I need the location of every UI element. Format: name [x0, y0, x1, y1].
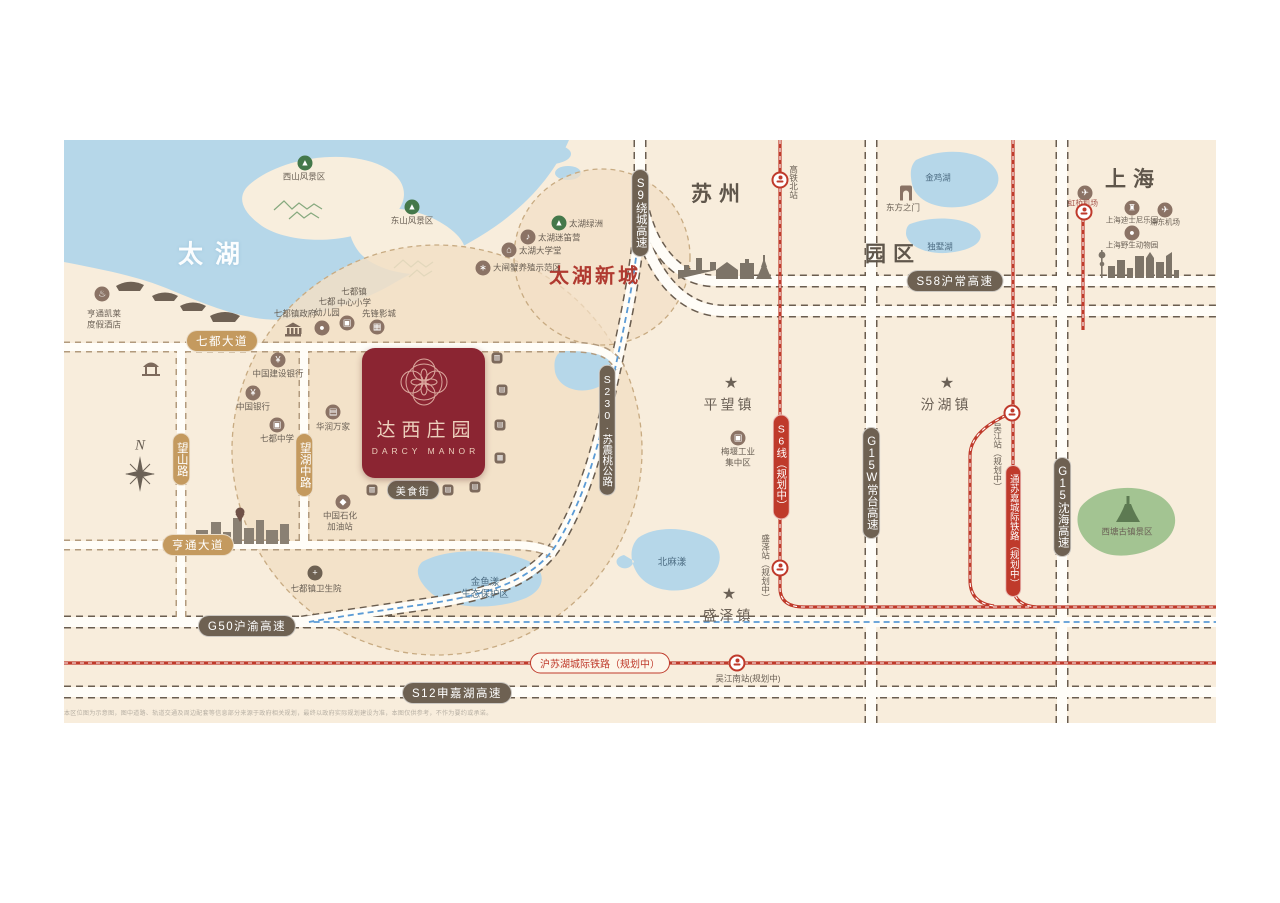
- kindergarten-label: 七都 幼儿园: [314, 296, 340, 317]
- jinyuyang-reserve-label: 金鱼漾 生态保护区: [461, 577, 509, 601]
- logo-side-icon-2: ▤: [497, 385, 508, 396]
- project-logo: 达西庄园 DARCY MANOR: [362, 348, 485, 478]
- taihu-university-icon: ⌂: [502, 243, 517, 258]
- wujiang-south-station-icon: [729, 655, 746, 672]
- road-pill-wangshan: 望山路: [172, 433, 190, 486]
- road-pill-s58: S58沪常高速: [907, 270, 1004, 292]
- town-shengze: 盛泽镇: [703, 607, 754, 625]
- wildlife-park-label: 上海野生动物园: [1106, 240, 1159, 249]
- food-street-pill: 美食街: [387, 480, 440, 500]
- hospital-label: 七都镇卫生院: [290, 584, 341, 595]
- food-street-icon-3: ▤: [470, 482, 481, 493]
- kindergarten-icon: ●: [315, 321, 330, 336]
- dongshan-scenic-icon: ▲: [405, 200, 420, 215]
- logo-side-icon-4: ▦: [495, 453, 506, 464]
- disney-icon: ♜: [1125, 201, 1140, 216]
- sinopec-line2: 加油站: [323, 521, 357, 532]
- pingwang-star-icon: ★: [724, 373, 738, 393]
- map-page: 太湖 苏州 园区 上海 太湖新城 N 达西: [0, 0, 1280, 903]
- crab-zone-icon: ∗: [476, 261, 491, 276]
- jinyuyang-line1: 金鱼漾: [461, 577, 509, 589]
- road-pill-g15w: G15W常台高速: [862, 427, 880, 539]
- primary-line2: 中心小学: [337, 297, 371, 308]
- sinopec-gas-icon: ◆: [336, 495, 351, 510]
- vanguard-market-label: 华润万家: [316, 422, 350, 433]
- pudong-airport-icon: ✈: [1158, 203, 1173, 218]
- region-taihu-newtown: 太湖新城: [549, 265, 641, 290]
- suzhou-skyline: [678, 255, 772, 279]
- jinyuyang-line2: 生态保护区: [461, 589, 509, 601]
- shanghai-skyline: [1099, 250, 1179, 278]
- meiyan-line2: 集中区: [721, 457, 755, 468]
- compass-north-label: N: [135, 438, 145, 455]
- pudong-airport-label: 浦东机场: [1150, 217, 1180, 226]
- boc-bank-icon: ¥: [246, 386, 261, 401]
- sinopec-line1: 中国石化: [323, 510, 357, 521]
- logo-side-icon-3: ▤: [495, 420, 506, 431]
- jinji-lake-shape: [911, 152, 999, 208]
- boc-bank-label: 中国银行: [236, 402, 270, 413]
- railway-pill-husuhu: 沪苏湖城际铁路（规划中）: [530, 653, 670, 674]
- project-name-en: DARCY MANOR: [366, 446, 485, 456]
- road-pill-qidu-avenue: 七都大道: [186, 330, 258, 352]
- food-street-icon-2: ▤: [443, 485, 454, 496]
- project-name-cn: 达西庄园: [368, 415, 485, 442]
- road-pill-wanghu-middle: 望湖中路: [295, 433, 313, 497]
- primary-school-label: 七都镇 中心小学: [337, 286, 371, 307]
- railway-pill-tongsujia: 通苏嘉城际铁路（规划中）: [1005, 465, 1021, 597]
- cinema-label: 先锋影城: [362, 309, 396, 320]
- road-pill-s230: S230·苏震桃公路: [599, 365, 616, 496]
- jinji-lake-label: 金鸡湖: [925, 173, 951, 184]
- ccb-bank-icon: ¥: [271, 353, 286, 368]
- map-canvas: 太湖 苏州 园区 上海 太湖新城 N 达西: [64, 140, 1216, 723]
- compass-needle-ew: [125, 471, 155, 478]
- hotel-label: 亨通凯莱 度假酒店: [87, 308, 121, 329]
- dushu-lake-label: 独墅湖: [927, 242, 953, 253]
- wujiang-station-icon: [1004, 405, 1021, 422]
- shengze-station-icon: [772, 560, 789, 577]
- xishan-scenic-label: 西山风景区: [283, 172, 326, 183]
- middle-school-label: 七都中学: [260, 434, 294, 445]
- kindergarten-line1: 七都: [314, 296, 340, 307]
- taihu-university-label: 太湖大学堂: [519, 246, 562, 257]
- wujiang-south-station-label: 吴江南站(规划中): [715, 674, 780, 685]
- midi-camp-label: 太湖迷笛营: [538, 233, 581, 244]
- vanguard-market-icon: ▤: [326, 405, 341, 420]
- beimayang-lake-label: 北麻漾: [658, 557, 687, 569]
- road-pill-hengtong-avenue: 亨通大道: [162, 534, 234, 556]
- crab-zone-label: 大闸蟹养殖示范区: [493, 263, 561, 274]
- sinopec-gas-label: 中国石化 加油站: [323, 510, 357, 531]
- logo-emblem-icon: [396, 356, 452, 408]
- meiyan-industry-icon: ▣: [731, 431, 746, 446]
- wujiang-station-label: 吴江站（规划中）: [992, 423, 1001, 491]
- primary-school-icon: ▣: [340, 316, 355, 331]
- xishan-scenic-icon: ▲: [298, 156, 313, 171]
- wildlife-park-icon: ●: [1125, 226, 1140, 241]
- kindergarten-line2: 幼儿园: [314, 307, 340, 318]
- hotel-line2: 度假酒店: [87, 319, 121, 330]
- road-pill-g50: G50沪渝高速: [198, 615, 296, 637]
- primary-line1: 七都镇: [337, 286, 371, 297]
- shengze-station-label: 盛泽站（规划中）: [760, 534, 769, 602]
- region-suzhou: 苏州: [691, 182, 747, 208]
- food-street-icon-1: ▥: [367, 485, 378, 496]
- region-parkzone: 园区: [865, 242, 921, 268]
- disclaimer: 本区位图为示意图，图中道路、轨道交通及周边配套等信息部分来源于政府相关规划，最终…: [64, 708, 684, 717]
- hospital-icon: +: [308, 566, 323, 581]
- taihu-oasis-pond: [517, 143, 571, 165]
- region-shanghai: 上海: [1105, 167, 1161, 193]
- gaotie-north-station-icon: [772, 172, 789, 189]
- meiyan-industry-label: 梅堰工业 集中区: [721, 446, 755, 467]
- dongshan-scenic-label: 东山风景区: [391, 216, 434, 227]
- fenhu-star-icon: ★: [940, 373, 954, 393]
- town-fenhu: 汾湖镇: [921, 396, 972, 414]
- gaotie-north-station-label: 高铁北站: [788, 165, 797, 199]
- ccb-bank-label: 中国建设银行: [252, 369, 303, 380]
- road-pill-s9: S9绕城高速: [631, 169, 649, 257]
- hotel-line1: 亨通凯莱: [87, 308, 121, 319]
- gate-of-orient-icon: [900, 186, 912, 201]
- hotel-icon: ♨: [95, 287, 110, 302]
- shengze-star-icon: ★: [722, 584, 736, 604]
- taihu-oasis-icon: ▲: [552, 216, 567, 231]
- taihu-oasis-label: 太湖绿洲: [569, 219, 603, 230]
- gate-of-orient-label: 东方之门: [886, 203, 920, 214]
- midi-camp-icon: ♪: [521, 230, 536, 245]
- region-taihu: 太湖: [178, 239, 252, 270]
- town-pingwang: 平望镇: [704, 396, 755, 414]
- xitang-scenic-label: 西塘古镇景区: [1101, 527, 1152, 538]
- government-label: 七都镇政府: [274, 309, 317, 320]
- middle-school-icon: ▣: [270, 418, 285, 433]
- cinema-icon: ▦: [370, 320, 385, 335]
- road-pill-g15: G15沈海高速: [1053, 457, 1071, 557]
- meiyan-line1: 梅堰工业: [721, 446, 755, 457]
- pavilion-icon: [142, 363, 160, 377]
- railway-pill-s6: S6线（规划中）: [773, 415, 790, 520]
- road-pill-s12: S12申嘉湖高速: [402, 682, 512, 704]
- logo-side-icon-1: ▥: [492, 353, 503, 364]
- hongqiao-station-icon: [1076, 204, 1093, 221]
